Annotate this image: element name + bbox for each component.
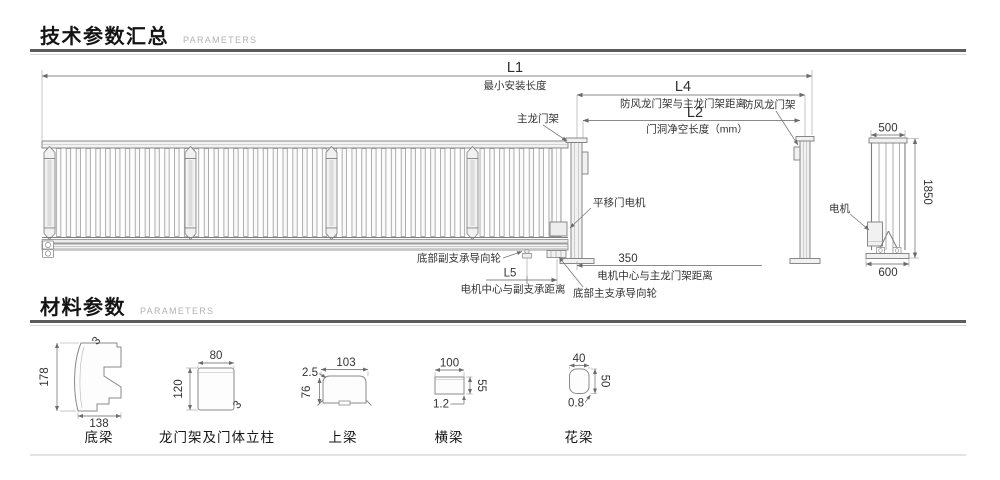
profile5-name: 花梁 xyxy=(565,430,594,445)
label-main-gantry: 主龙门架 xyxy=(517,112,567,141)
aux-guide-wheel-label: 底部副支承导向轮 xyxy=(417,252,501,265)
material-section-divider xyxy=(30,320,966,326)
profile-decorative-beam: 40 50 0.8 花梁 xyxy=(565,353,611,445)
profile4-height: 55 xyxy=(475,379,487,392)
profile2-height: 120 xyxy=(173,379,185,398)
dim-350-code: 350 xyxy=(618,253,637,265)
side-view-height: 1850 xyxy=(921,179,933,205)
profile4-thickness: 1.2 xyxy=(433,399,449,411)
gate-motor-box xyxy=(550,222,567,236)
profile5-thickness: 0.8 xyxy=(568,398,584,410)
divider-dark-line xyxy=(30,49,966,52)
motor-label: 电机 xyxy=(829,202,850,215)
dim-L5-code: L5 xyxy=(504,268,517,280)
profile-bottom-beam: 3 178 138 底梁 xyxy=(39,335,121,445)
divider-light-line xyxy=(30,54,966,55)
dim-L5-desc: 电机中心与副支承距离 xyxy=(461,283,566,296)
profile1-name: 底梁 xyxy=(85,430,114,445)
bottom-aux-support-wheel xyxy=(523,249,532,258)
dimension-350: 350 电机中心与主龙门架距离 xyxy=(577,253,762,282)
profile3-height: 76 xyxy=(301,386,313,399)
gate-leaf xyxy=(42,141,568,258)
divider-light-line xyxy=(30,325,966,326)
dim-L2-code: L2 xyxy=(687,105,703,121)
technical-section-header: 技术参数汇总 PARAMETERS xyxy=(40,20,257,49)
technical-section-divider xyxy=(30,49,966,55)
dim-L1-code: L1 xyxy=(507,60,523,76)
material-section-title: 材料参数 xyxy=(40,291,126,320)
side-view-top-width: 500 xyxy=(878,123,897,135)
technical-section-title: 技术参数汇总 xyxy=(40,20,169,49)
dim-350-desc: 电机中心与主龙门架距离 xyxy=(597,269,713,282)
profile1-height: 178 xyxy=(39,367,51,386)
profile-gantry-post: 80 120 3 龙门架及门体立柱 xyxy=(159,350,275,445)
main-guide-wheel-label: 底部主支承导向轮 xyxy=(573,287,657,300)
gantry-side-view: 500 1850 电机 600 xyxy=(829,123,933,280)
profile2-width: 80 xyxy=(210,350,223,362)
material-profiles: 3 178 138 底梁 80 120 3 龙门架及门体立柱 xyxy=(0,328,1000,454)
page: 技术参数汇总 PARAMETERS xyxy=(0,0,1000,480)
gate-post xyxy=(44,147,55,240)
sliding-motor-label: 平移门电机 xyxy=(593,196,646,209)
bottom-divider xyxy=(30,454,966,456)
profile2-name: 龙门架及门体立柱 xyxy=(159,430,275,445)
profile5-height: 50 xyxy=(599,375,611,388)
dim-L2-desc: 门洞净空长度（mm） xyxy=(646,123,748,136)
gate-post xyxy=(467,147,478,240)
profile4-width: 100 xyxy=(440,358,459,370)
profile-top-beam: 103 2.5 76 上梁 xyxy=(301,357,372,445)
profile3-name: 上梁 xyxy=(329,430,358,445)
profile3-thickness: 2.5 xyxy=(302,367,318,379)
dim-L1-desc: 最小安装长度 xyxy=(484,79,547,92)
material-section-subtitle: PARAMETERS xyxy=(140,306,214,316)
bottom-main-support-wheel xyxy=(547,251,566,258)
gate-bottom-rail xyxy=(42,238,568,251)
technical-drawing: L1 最小安装长度 L4 防风龙门架与主龙门架距离 L2 门洞净空长度（mm） … xyxy=(0,56,1000,302)
main-gantry-label: 主龙门架 xyxy=(517,112,559,125)
side-view-base-width: 600 xyxy=(878,267,897,279)
profile-cross-beam: 100 55 1.2 横梁 xyxy=(433,358,487,446)
wind-gantry-label: 防风龙门架 xyxy=(743,98,796,111)
profile5-width: 40 xyxy=(573,353,586,365)
technical-section-subtitle: PARAMETERS xyxy=(183,35,257,45)
dim-L4-code: L4 xyxy=(675,79,691,95)
profile1-width: 138 xyxy=(89,418,108,430)
side-view-motor-box xyxy=(868,222,883,246)
gate-post xyxy=(185,147,196,240)
dim-L4-desc: 防风龙门架与主龙门架距离 xyxy=(620,97,746,110)
label-wind-gantry: 防风龙门架 xyxy=(743,98,798,145)
profile4-name: 横梁 xyxy=(435,430,464,445)
label-aux-guide-wheel: 底部副支承导向轮 xyxy=(417,252,522,265)
gate-left-wheels xyxy=(43,241,54,258)
divider-dark-line xyxy=(30,320,966,323)
gate-post xyxy=(326,147,337,240)
profile3-width: 103 xyxy=(336,357,355,369)
material-section-header: 材料参数 PARAMETERS xyxy=(40,291,214,320)
